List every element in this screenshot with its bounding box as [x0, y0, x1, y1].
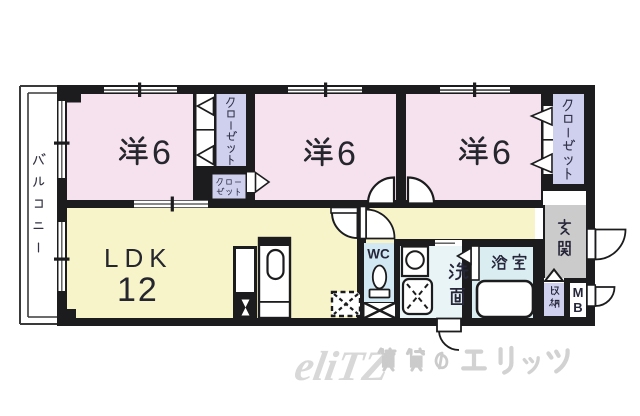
- svg-text:LDK: LDK: [104, 243, 173, 273]
- svg-text:6: 6: [337, 135, 356, 173]
- svg-text:12: 12: [117, 271, 159, 309]
- svg-text:WC: WC: [367, 247, 390, 262]
- svg-text:6: 6: [492, 134, 511, 172]
- svg-text:6: 6: [152, 134, 171, 172]
- svg-text:eliTZ: eliTZ: [291, 343, 392, 390]
- svg-text:M: M: [573, 285, 584, 300]
- svg-text:B: B: [573, 300, 582, 315]
